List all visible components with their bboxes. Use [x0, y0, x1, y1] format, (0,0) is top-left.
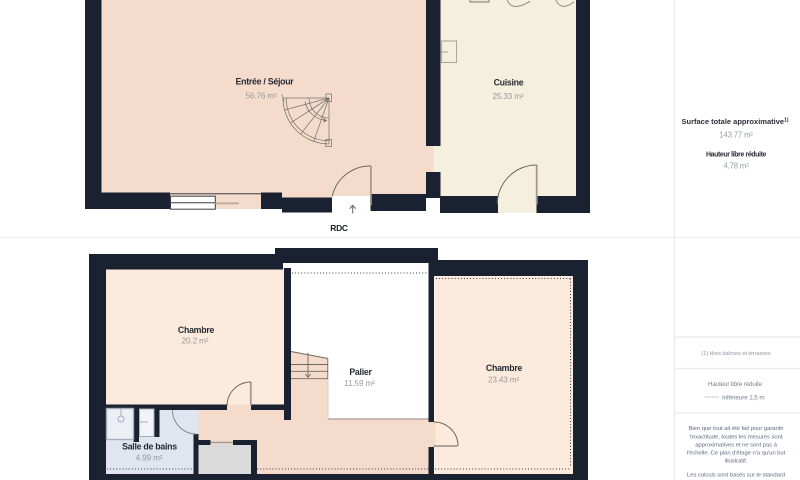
svg-text:23.43 m²: 23.43 m² [488, 376, 520, 385]
svg-text:approximatives et ne sont pas: approximatives et ne sont pas à [695, 443, 777, 449]
svg-text:l'exactitude, toutes les mesur: l'exactitude, toutes les mesures sont [690, 435, 783, 441]
svg-text:Inférieure 1,5 m: Inférieure 1,5 m [722, 394, 765, 401]
svg-text:Hauteur libre réduite: Hauteur libre réduite [708, 381, 763, 388]
svg-text:Palier: Palier [349, 367, 372, 377]
svg-text:Entrée / Séjour: Entrée / Séjour [236, 77, 295, 87]
svg-text:4.99 m²: 4.99 m² [136, 453, 163, 462]
svg-text:RDC: RDC [330, 223, 348, 233]
svg-text:4.78 m²: 4.78 m² [723, 161, 749, 170]
svg-text:20.2 m²: 20.2 m² [182, 337, 209, 346]
svg-text:(1) Hors balcons et terrasses: (1) Hors balcons et terrasses [701, 351, 770, 357]
svg-text:Chambre: Chambre [486, 363, 523, 373]
svg-text:Les calculs sont basés sur le: Les calculs sont basés sur le standard [687, 473, 785, 479]
svg-text:Salle de bains: Salle de bains [122, 441, 177, 451]
svg-text:56.76 m²: 56.76 m² [245, 92, 277, 101]
svg-text:Surface totale approximative1): Surface totale approximative1) [682, 117, 789, 126]
svg-text:Chambre: Chambre [178, 325, 215, 335]
svg-text:illustratif.: illustratif. [725, 459, 748, 465]
svg-text:Cuisine: Cuisine [494, 78, 524, 88]
svg-text:l'échelle. Ce plan d'étage n'a: l'échelle. Ce plan d'étage n'a qu'un but [687, 451, 786, 457]
svg-text:Hauteur libre réduite: Hauteur libre réduite [706, 151, 767, 158]
svg-text:11.59 m²: 11.59 m² [344, 379, 375, 388]
svg-text:25.33 m²: 25.33 m² [492, 92, 524, 101]
svg-text:Bien que tout ait été fait pou: Bien que tout ait été fait pour garantir [689, 426, 784, 432]
svg-text:143.77 m²: 143.77 m² [719, 131, 753, 140]
